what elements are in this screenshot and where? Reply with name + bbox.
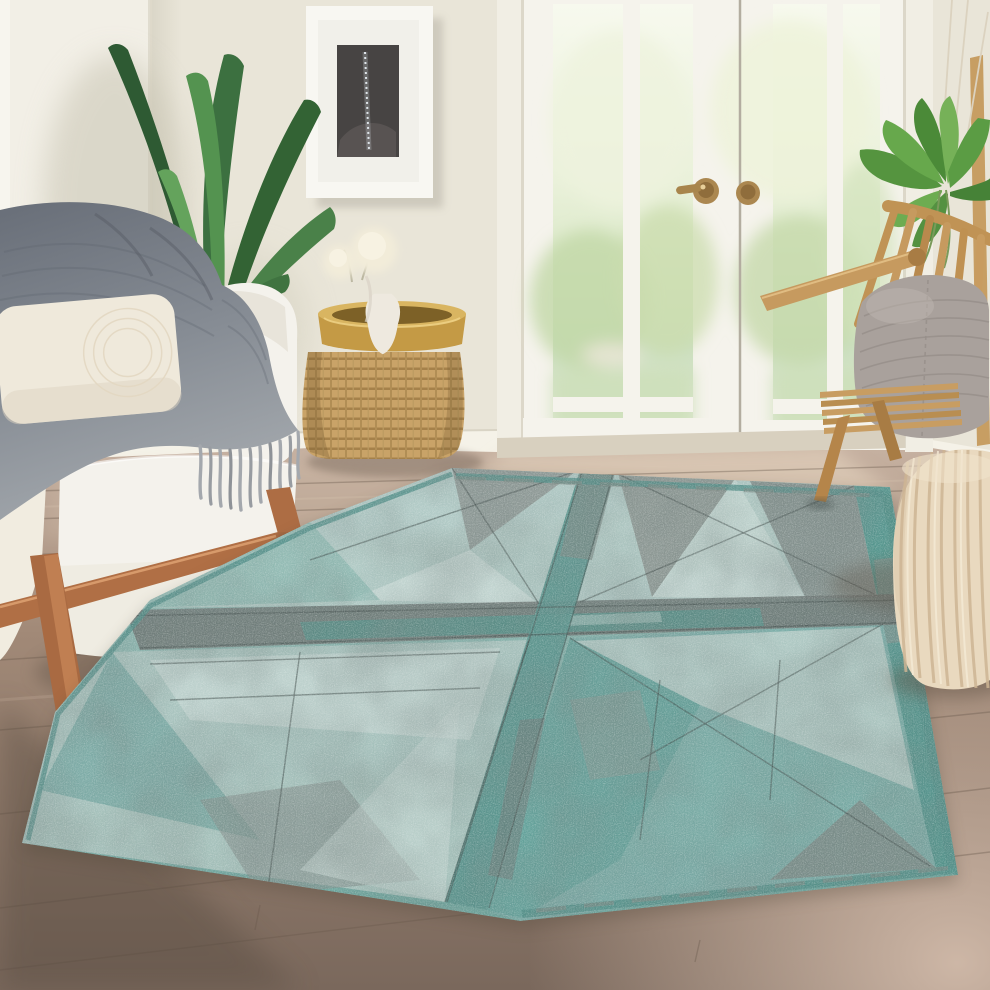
- bloom-highlight: [329, 249, 347, 267]
- right-knob: [741, 185, 756, 200]
- arm-cap: [908, 248, 926, 266]
- jamb-line-left: [521, 0, 524, 444]
- living-room-photo: [0, 0, 990, 990]
- left-jamb: [497, 0, 523, 450]
- front-leg-shadow: [806, 499, 834, 509]
- lumbar-pillow: [0, 292, 183, 425]
- knob-highlight: [701, 185, 706, 190]
- bloom-highlight: [358, 232, 386, 260]
- framed-artwork: [306, 6, 443, 208]
- wicker-drum: [302, 352, 464, 459]
- scene-canvas: [0, 0, 990, 990]
- pillow-highlight: [866, 288, 934, 324]
